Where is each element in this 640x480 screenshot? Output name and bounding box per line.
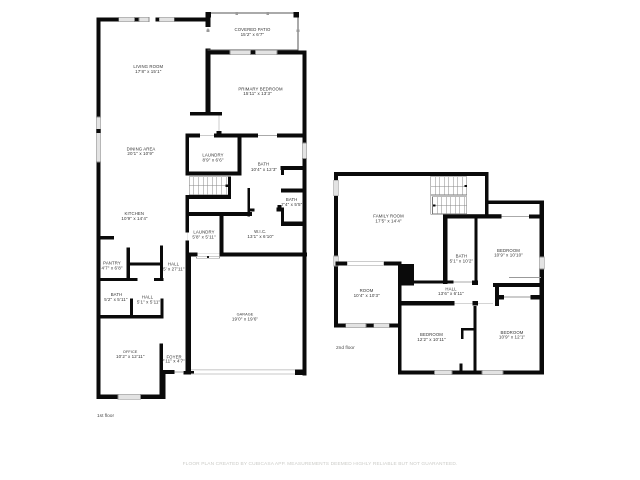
svg-text:5’1" x 10’2": 5’1" x 10’2" (450, 258, 474, 263)
svg-text:5’ x 27’11": 5’ x 27’11" (163, 266, 185, 271)
svg-text:20’1" x 10’9": 20’1" x 10’9" (127, 151, 154, 156)
svg-text:17’5" x 14’4": 17’5" x 14’4" (375, 218, 402, 223)
svg-text:8’9" x 6’6": 8’9" x 6’6" (202, 157, 223, 162)
svg-text:4’7" x 6’8": 4’7" x 6’8" (101, 265, 122, 270)
svg-text:10’9" x 10’10": 10’9" x 10’10" (494, 253, 523, 258)
svg-text:12’2" x 10’11": 12’2" x 10’11" (417, 337, 446, 342)
svg-text:5’8" x 5’11": 5’8" x 5’11" (192, 234, 216, 239)
svg-text:19’0" x 19’6": 19’0" x 19’6" (232, 316, 259, 321)
svg-text:5’2" x 5’11": 5’2" x 5’11" (104, 297, 128, 302)
svg-text:13’1" x 6’10": 13’1" x 6’10" (247, 234, 274, 239)
svg-text:5’1" x 5’11": 5’1" x 5’11" (137, 299, 161, 304)
svg-text:13’6" x 6’11": 13’6" x 6’11" (438, 291, 464, 296)
svg-text:10’4" x 12’3": 10’4" x 12’3" (251, 167, 278, 172)
svg-text:1st floor: 1st floor (97, 413, 114, 419)
svg-text:15’11" x 13’3": 15’11" x 13’3" (243, 91, 272, 96)
svg-text:FLOOR PLAN CREATED BY CUBICASA: FLOOR PLAN CREATED BY CUBICASA APP. MEAS… (183, 461, 458, 467)
svg-text:10’9" x 12’1": 10’9" x 12’1" (499, 335, 526, 340)
svg-text:10’9" x 14’4": 10’9" x 14’4" (121, 216, 148, 221)
svg-text:10’2" x 12’11": 10’2" x 12’11" (116, 354, 145, 359)
svg-text:2nd floor: 2nd floor (336, 345, 355, 351)
svg-text:17’8" x 15’1": 17’8" x 15’1" (135, 69, 162, 74)
svg-text:10’4" x 10’3": 10’4" x 10’3" (354, 293, 381, 298)
svg-text:7’11" x 4’7": 7’11" x 4’7" (162, 359, 186, 364)
svg-text:7’4" x 5’5": 7’4" x 5’5" (281, 202, 302, 207)
svg-text:15’2" x 6’7": 15’2" x 6’7" (241, 32, 265, 37)
